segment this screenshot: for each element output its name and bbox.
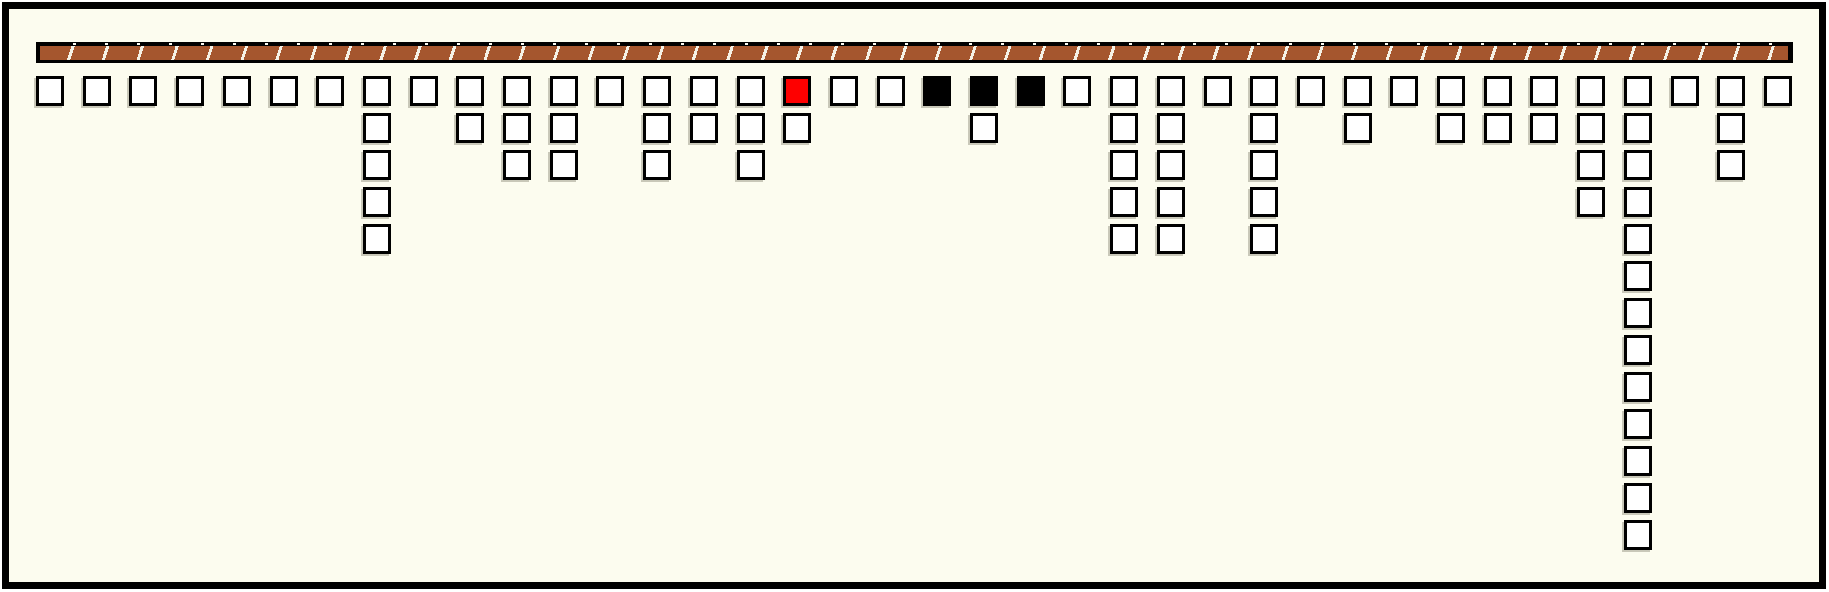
bucket-cell-c15-r2	[737, 150, 765, 180]
bucket-cell-c34-r11	[1624, 483, 1652, 513]
bucket-cell-c14-r0	[690, 76, 718, 106]
bucket-cell-c22-r0	[1063, 76, 1091, 106]
bucket-cell-c16-r0	[783, 76, 811, 106]
bucket-cell-c27-r0	[1297, 76, 1325, 106]
bucket-cell-c7-r0	[363, 76, 391, 106]
bucket-cell-c35-r0	[1671, 76, 1699, 106]
bucket-cell-c18-r0	[877, 76, 905, 106]
bucket-cell-c34-r12	[1624, 520, 1652, 550]
bucket-cell-c11-r0	[550, 76, 578, 106]
bucket-cell-c31-r1	[1484, 113, 1512, 143]
bucket-cell-c31-r0	[1484, 76, 1512, 106]
bucket-cell-c37-r0	[1764, 76, 1792, 106]
beam-hatch-pattern	[40, 46, 1788, 60]
bucket-cell-c34-r5	[1624, 261, 1652, 291]
bucket-cell-c23-r3	[1110, 187, 1138, 217]
bucket-cell-c10-r1	[503, 113, 531, 143]
bucket-cell-c33-r1	[1577, 113, 1605, 143]
bucket-cell-c20-r1	[970, 113, 998, 143]
bucket-cell-c1-r0	[83, 76, 111, 106]
bucket-cell-c24-r1	[1157, 113, 1185, 143]
bucket-cell-c9-r0	[456, 76, 484, 106]
bucket-cell-c8-r0	[410, 76, 438, 106]
bucket-cell-c6-r0	[316, 76, 344, 106]
bucket-cell-c23-r0	[1110, 76, 1138, 106]
bucket-cell-c2-r0	[129, 76, 157, 106]
bucket-cell-c16-r1	[783, 113, 811, 143]
bucket-cell-c0-r0	[36, 76, 64, 106]
bucket-cell-c34-r2	[1624, 150, 1652, 180]
bucket-cell-c11-r2	[550, 150, 578, 180]
bucket-cell-c33-r2	[1577, 150, 1605, 180]
hatched-beam	[36, 42, 1793, 63]
bucket-cell-c36-r2	[1717, 150, 1745, 180]
bucket-cell-c10-r2	[503, 150, 531, 180]
bucket-cell-c4-r0	[223, 76, 251, 106]
bucket-cell-c26-r4	[1250, 224, 1278, 254]
bucket-cell-c9-r1	[456, 113, 484, 143]
bucket-cell-c33-r3	[1577, 187, 1605, 217]
bucket-cell-c26-r0	[1250, 76, 1278, 106]
bucket-cell-c34-r0	[1624, 76, 1652, 106]
bucket-cell-c23-r2	[1110, 150, 1138, 180]
diagram-frame	[2, 2, 1826, 589]
bucket-cell-c23-r4	[1110, 224, 1138, 254]
bucket-cell-c13-r2	[643, 150, 671, 180]
bucket-cell-c7-r3	[363, 187, 391, 217]
bucket-cell-c36-r1	[1717, 113, 1745, 143]
bucket-cell-c28-r1	[1344, 113, 1372, 143]
bucket-cell-c34-r7	[1624, 335, 1652, 365]
bucket-cell-c34-r4	[1624, 224, 1652, 254]
beam-top-ticks	[44, 43, 1785, 45]
bucket-cell-c11-r1	[550, 113, 578, 143]
bucket-cell-c36-r0	[1717, 76, 1745, 106]
bucket-cell-c21-r0	[1017, 76, 1045, 106]
bucket-cell-c34-r9	[1624, 409, 1652, 439]
bucket-cell-c10-r0	[503, 76, 531, 106]
bucket-cell-c34-r3	[1624, 187, 1652, 217]
bucket-cell-c7-r4	[363, 224, 391, 254]
bucket-cell-c34-r10	[1624, 446, 1652, 476]
bucket-cell-c26-r2	[1250, 150, 1278, 180]
bucket-cell-c26-r1	[1250, 113, 1278, 143]
bucket-cell-c23-r1	[1110, 113, 1138, 143]
bucket-cell-c33-r0	[1577, 76, 1605, 106]
bucket-cell-c14-r1	[690, 113, 718, 143]
bucket-cell-c30-r0	[1437, 76, 1465, 106]
bucket-cell-c19-r0	[923, 76, 951, 106]
bucket-cell-c12-r0	[596, 76, 624, 106]
bucket-cell-c15-r0	[737, 76, 765, 106]
bucket-cell-c24-r2	[1157, 150, 1185, 180]
bucket-cell-c13-r0	[643, 76, 671, 106]
bucket-cell-c25-r0	[1204, 76, 1232, 106]
bucket-cell-c34-r6	[1624, 298, 1652, 328]
bucket-cell-c34-r8	[1624, 372, 1652, 402]
chaining-diagram	[0, 0, 1829, 592]
applet-window: { "scene": { "description": "separate-ch…	[0, 0, 1829, 592]
bucket-cell-c20-r0	[970, 76, 998, 106]
bucket-cell-c24-r4	[1157, 224, 1185, 254]
bucket-cell-c5-r0	[270, 76, 298, 106]
bucket-cell-c29-r0	[1390, 76, 1418, 106]
bucket-cell-c3-r0	[176, 76, 204, 106]
bucket-cell-c34-r1	[1624, 113, 1652, 143]
bucket-cell-c32-r0	[1530, 76, 1558, 106]
bucket-cell-c7-r2	[363, 150, 391, 180]
bucket-cell-c26-r3	[1250, 187, 1278, 217]
bucket-cell-c13-r1	[643, 113, 671, 143]
bucket-cell-c24-r0	[1157, 76, 1185, 106]
bucket-cell-c7-r1	[363, 113, 391, 143]
bucket-cell-c28-r0	[1344, 76, 1372, 106]
bucket-cell-c17-r0	[830, 76, 858, 106]
bucket-cell-c15-r1	[737, 113, 765, 143]
bucket-cell-c30-r1	[1437, 113, 1465, 143]
bucket-cell-c24-r3	[1157, 187, 1185, 217]
bucket-cell-c32-r1	[1530, 113, 1558, 143]
